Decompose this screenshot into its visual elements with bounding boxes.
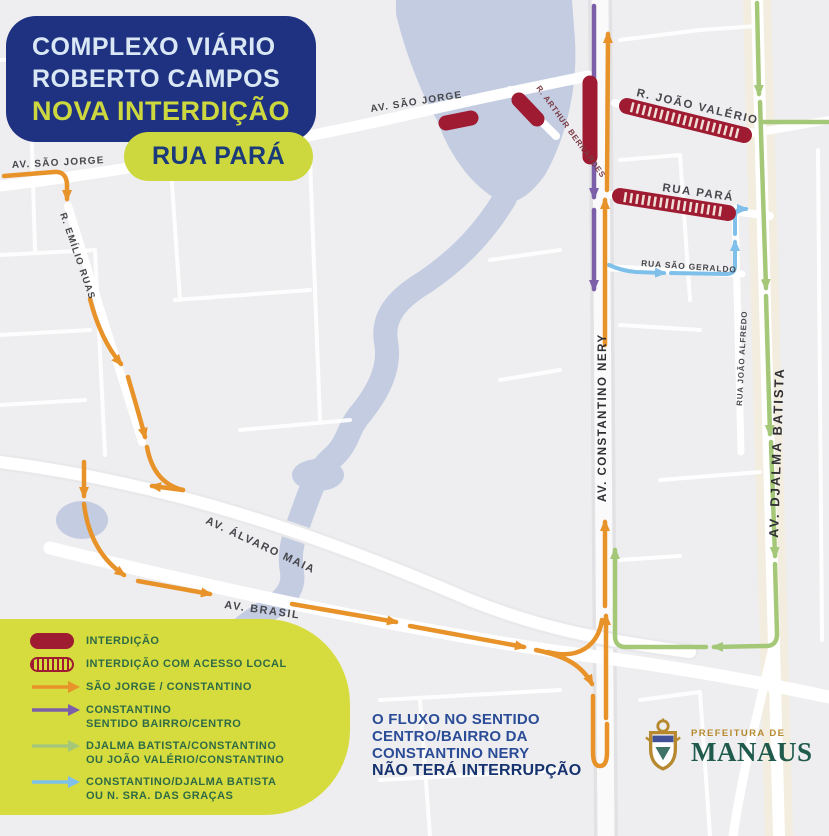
legend-label: INTERDIÇÃO — [86, 634, 159, 648]
title-line-3: NOVA INTERDIÇÃO — [32, 95, 290, 128]
legend-label: SÃO JORGE / CONSTANTINO — [86, 680, 252, 694]
title-box: COMPLEXO VIÁRIO ROBERTO CAMPOS NOVA INTE… — [6, 16, 316, 142]
legend-item-constantino: CONSTANTINO SENTIDO BAIRRO/CENTRO — [30, 702, 350, 731]
green-arrow-icon — [30, 738, 86, 754]
orange-arrow-icon — [30, 679, 86, 695]
flow-notice: O FLUXO NO SENTIDO CENTRO/BAIRRO DA CONS… — [372, 711, 581, 779]
pond-2 — [292, 459, 344, 491]
interdiction-sao-jorge-1 — [446, 118, 471, 123]
route-orange-seg15 — [607, 34, 608, 190]
purple-arrow-icon — [30, 702, 86, 718]
notice-line-2: CENTRO/BAIRRO DA — [372, 728, 581, 745]
title-line-2: ROBERTO CAMPOS — [32, 64, 290, 96]
legend-item-sao-jorge: SÃO JORGE / CONSTANTINO — [30, 679, 350, 695]
legend-item-interdicao: INTERDIÇÃO — [30, 633, 350, 649]
street-badge: RUA PARÁ — [124, 132, 313, 181]
route-green-seg1 — [757, 3, 759, 94]
interdiction-hatched-swatch — [30, 656, 86, 672]
legend-item-interdicao-acesso: INTERDIÇÃO COM ACESSO LOCAL — [30, 656, 350, 672]
legend-label: OU N. SRA. DAS GRAÇAS — [86, 789, 276, 803]
notice-line-3: CONSTANTINO NERY — [372, 745, 581, 762]
legend-item-constantino-djalma: CONSTANTINO/DJALMA BATISTA OU N. SRA. DA… — [30, 774, 350, 803]
notice-line-1: O FLUXO NO SENTIDO — [372, 711, 581, 728]
legend-label: DJALMA BATISTA/CONSTANTINO — [86, 739, 284, 753]
legend-label: CONSTANTINO — [86, 703, 241, 717]
title-line-1: COMPLEXO VIÁRIO — [32, 32, 290, 64]
prefeitura-manaus-logo: PREFEITURA DE MANAUS — [644, 718, 813, 774]
legend: INTERDIÇÃO INTERDIÇÃO COM ACESSO LOCAL S… — [0, 619, 350, 815]
legend-label: SENTIDO BAIRRO/CENTRO — [86, 717, 241, 731]
manaus-text: MANAUS — [691, 739, 813, 765]
legend-item-djalma: DJALMA BATISTA/CONSTANTINO OU JOÃO VALÉR… — [30, 738, 350, 767]
interdiction-swatch — [30, 633, 86, 649]
blue-arrow-icon — [30, 774, 86, 790]
pond — [56, 501, 108, 539]
label-constantino-nery: AV. CONSTANTINO NERY — [597, 333, 609, 502]
infographic-map: AV. SÃO JORGE AV. SÃO JORGE R. EMÍLIO RU… — [0, 0, 829, 836]
notice-line-4: NÃO TERÁ INTERRUPÇÃO — [372, 762, 581, 779]
legend-label: OU JOÃO VALÉRIO/CONSTANTINO — [86, 753, 284, 767]
legend-label: CONSTANTINO/DJALMA BATISTA — [86, 775, 276, 789]
manaus-crest-icon — [644, 718, 682, 774]
legend-label: INTERDIÇÃO COM ACESSO LOCAL — [86, 657, 287, 671]
